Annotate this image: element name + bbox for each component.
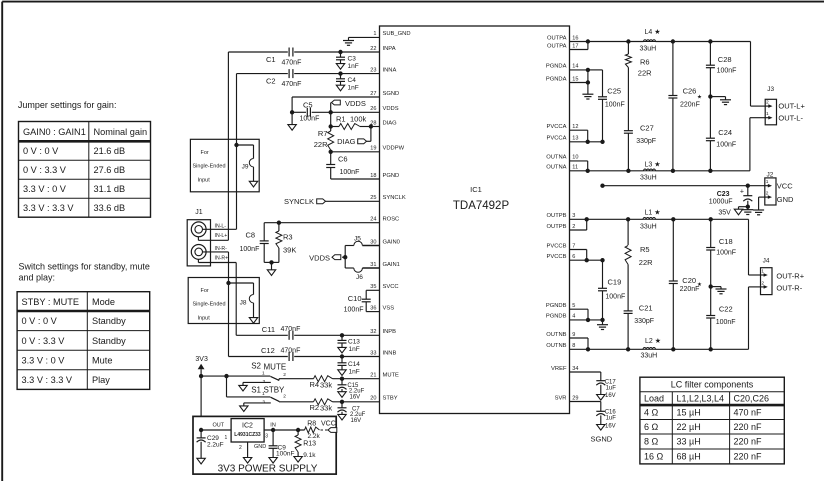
svg-text:S2: S2: [251, 362, 261, 371]
svg-text:C25: C25: [607, 87, 621, 96]
svg-text:0 V : 3.3 V: 0 V : 3.3 V: [22, 336, 66, 346]
svg-text:OUT-L-: OUT-L-: [778, 113, 803, 122]
svg-text:Input: Input: [198, 316, 211, 322]
svg-text:S1: S1: [251, 385, 261, 394]
svg-text:Standby: Standby: [92, 316, 126, 326]
svg-text:C2: C2: [266, 77, 276, 86]
svg-text:16V: 16V: [605, 393, 616, 399]
svg-text:31: 31: [370, 262, 376, 268]
svg-text:13: 13: [572, 136, 578, 142]
svg-text:J4: J4: [763, 258, 770, 265]
svg-text:VDDS: VDDS: [383, 106, 399, 112]
svg-text:1: 1: [225, 435, 228, 441]
svg-text:C18: C18: [719, 237, 733, 246]
svg-text:PGNDA: PGNDA: [546, 64, 567, 70]
svg-text:39K: 39K: [283, 245, 296, 254]
svg-text:VDDS: VDDS: [309, 254, 330, 263]
svg-text:33: 33: [370, 350, 376, 356]
svg-text:4 Ω: 4 Ω: [644, 408, 659, 418]
svg-text:R3: R3: [283, 232, 293, 241]
svg-text:1000uF: 1000uF: [709, 199, 733, 206]
svg-text:22R: 22R: [314, 140, 328, 149]
svg-text:0 V : 0 V: 0 V : 0 V: [22, 316, 58, 326]
svg-text:Nominal gain: Nominal gain: [94, 127, 148, 137]
svg-text:220nF: 220nF: [680, 286, 700, 293]
svg-text:GAIN0: GAIN0: [383, 239, 400, 245]
svg-text:3V3: 3V3: [195, 356, 208, 363]
svg-text:IN: IN: [270, 422, 276, 428]
svg-text:Jumper settings for gain:: Jumper settings for gain:: [18, 100, 117, 110]
svg-text:SVCC: SVCC: [383, 284, 399, 290]
svg-text:2.2uF: 2.2uF: [349, 389, 365, 395]
svg-text:and play:: and play:: [19, 273, 56, 283]
svg-text:470nF: 470nF: [282, 60, 302, 67]
svg-text:C12: C12: [261, 346, 275, 355]
svg-text:C10: C10: [348, 294, 362, 303]
svg-text:1nF: 1nF: [349, 346, 360, 353]
svg-text:31.1 dB: 31.1 dB: [94, 184, 126, 194]
svg-text:19: 19: [370, 146, 376, 152]
svg-text:22R: 22R: [638, 69, 652, 78]
svg-text:100nF: 100nF: [716, 319, 736, 326]
svg-text:IN-L+: IN-L+: [215, 233, 228, 239]
svg-text:J1: J1: [195, 209, 203, 216]
svg-text:SUB_GND: SUB_GND: [383, 31, 411, 37]
svg-text:29: 29: [572, 395, 578, 401]
svg-text:25: 25: [370, 195, 376, 201]
svg-text:220 nF: 220 nF: [734, 437, 763, 447]
svg-text:22: 22: [370, 46, 376, 52]
svg-text:OUTPB: OUTPB: [547, 224, 567, 230]
svg-text:GAIN1: GAIN1: [383, 262, 400, 268]
svg-text:35: 35: [370, 284, 376, 290]
svg-text:PGNDB: PGNDB: [546, 314, 567, 320]
svg-text:3.3 V : 0 V: 3.3 V : 0 V: [23, 184, 67, 194]
svg-text:C24: C24: [718, 128, 732, 137]
svg-text:470nF: 470nF: [281, 348, 301, 355]
svg-text:1nF: 1nF: [348, 63, 359, 70]
svg-text:J6: J6: [356, 274, 363, 281]
svg-text:Standby: Standby: [92, 336, 126, 346]
svg-text:C19: C19: [608, 278, 622, 287]
svg-text:34: 34: [572, 366, 578, 372]
svg-text:C1: C1: [266, 55, 276, 64]
svg-text:3.3 V : 3.3 V: 3.3 V : 3.3 V: [23, 203, 74, 213]
svg-text:C26: C26: [683, 87, 697, 96]
svg-text:32: 32: [370, 329, 376, 335]
svg-text:R6: R6: [640, 58, 650, 67]
svg-text:VCC: VCC: [777, 181, 793, 190]
svg-text:INPB: INPB: [383, 329, 397, 335]
svg-text:23: 23: [370, 67, 376, 73]
svg-text:24: 24: [370, 217, 376, 223]
svg-text:PVCCB: PVCCB: [547, 254, 567, 260]
svg-text:68 µH: 68 µH: [677, 452, 701, 462]
svg-text:R7: R7: [318, 129, 328, 138]
svg-text:PVCCA: PVCCA: [547, 124, 567, 130]
svg-text:9.1k: 9.1k: [303, 452, 316, 459]
svg-text:330pF: 330pF: [636, 138, 656, 145]
svg-text:9: 9: [572, 332, 575, 338]
svg-text:100nF: 100nF: [605, 293, 625, 300]
svg-text:33.6 dB: 33.6 dB: [94, 203, 126, 213]
svg-text:3.3 V : 0 V: 3.3 V : 0 V: [22, 355, 66, 365]
svg-text:16V: 16V: [351, 418, 362, 424]
svg-text:16V: 16V: [350, 395, 361, 401]
svg-text:IN-R+: IN-R+: [215, 256, 229, 262]
svg-text:C23: C23: [717, 191, 730, 198]
svg-text:11: 11: [572, 165, 578, 171]
svg-text:STBY: STBY: [383, 396, 398, 402]
svg-text:L1 ★: L1 ★: [645, 208, 661, 216]
svg-text:DIAG: DIAG: [383, 120, 398, 126]
svg-text:33uH: 33uH: [640, 46, 657, 53]
svg-text:ROSC: ROSC: [383, 217, 400, 223]
svg-text:16: 16: [572, 35, 578, 41]
svg-text:100nF: 100nF: [240, 246, 260, 253]
svg-text:6: 6: [572, 254, 575, 260]
svg-text:33k: 33k: [320, 381, 332, 390]
svg-text:2: 2: [283, 372, 286, 378]
svg-text:Mute: Mute: [92, 355, 112, 365]
svg-text:15 µH: 15 µH: [677, 408, 701, 418]
svg-text:220nF: 220nF: [680, 102, 700, 109]
svg-text:1: 1: [373, 31, 376, 37]
svg-text:30: 30: [370, 239, 376, 245]
svg-text:R13: R13: [303, 440, 316, 447]
svg-text:3: 3: [265, 434, 268, 440]
svg-text:VSS: VSS: [383, 305, 395, 311]
svg-text:VDDS: VDDS: [345, 99, 366, 108]
svg-text:J5: J5: [354, 236, 361, 243]
svg-text:SVR: SVR: [555, 395, 567, 401]
svg-text:8 Ω: 8 Ω: [644, 437, 659, 447]
svg-text:SYNCLK: SYNCLK: [284, 197, 314, 206]
svg-text:2.2uF: 2.2uF: [207, 442, 224, 449]
svg-text:R2: R2: [310, 403, 320, 412]
svg-text:R4: R4: [310, 380, 320, 389]
svg-text:1uF: 1uF: [606, 415, 617, 421]
svg-text:OUT-R+: OUT-R+: [776, 272, 804, 281]
svg-text:36: 36: [370, 305, 376, 311]
svg-text:33uH: 33uH: [641, 352, 658, 359]
svg-text:1: 1: [262, 370, 265, 376]
svg-text:VCC: VCC: [321, 420, 336, 427]
svg-text:VREF: VREF: [551, 366, 567, 372]
svg-text:PGNDB: PGNDB: [546, 303, 567, 309]
svg-text:Single-Ended: Single-Ended: [193, 302, 226, 308]
svg-text:Mode: Mode: [92, 297, 115, 307]
svg-text:100nF: 100nF: [344, 307, 364, 314]
svg-text:C20,C26: C20,C26: [734, 394, 770, 404]
svg-text:C5: C5: [303, 101, 313, 110]
svg-text:For: For: [201, 288, 209, 294]
svg-text:14: 14: [572, 64, 578, 70]
svg-text:C13: C13: [348, 339, 360, 346]
svg-text:5: 5: [572, 303, 575, 309]
svg-text:2: 2: [283, 393, 286, 399]
svg-text:OUTPB: OUTPB: [547, 213, 567, 219]
svg-text:470nF: 470nF: [281, 326, 301, 333]
svg-text:33 µH: 33 µH: [677, 437, 701, 447]
svg-text:1: 1: [262, 391, 265, 397]
svg-text:C27: C27: [640, 123, 654, 132]
svg-text:OUTNB: OUTNB: [546, 343, 566, 349]
svg-text:4: 4: [572, 314, 575, 320]
svg-text:0 V : 0 V: 0 V : 0 V: [23, 146, 59, 156]
svg-text:SGND: SGND: [591, 435, 613, 444]
svg-text:J2: J2: [767, 171, 774, 178]
svg-text:33k: 33k: [320, 404, 332, 413]
svg-text:16 Ω: 16 Ω: [644, 452, 664, 462]
svg-text:Load: Load: [644, 394, 664, 404]
svg-text:PVCCA: PVCCA: [547, 136, 567, 142]
svg-text:PGND: PGND: [383, 173, 400, 179]
svg-text:IC1: IC1: [470, 185, 482, 194]
svg-text:★: ★: [697, 94, 702, 101]
svg-text:1uF: 1uF: [606, 385, 617, 391]
svg-text:STBY: STBY: [264, 385, 286, 394]
svg-text:GAIN0 : GAIN1: GAIN0 : GAIN1: [23, 127, 86, 137]
svg-text:16V: 16V: [605, 424, 616, 430]
svg-text:TDA7492P: TDA7492P: [453, 200, 510, 212]
svg-text:MUTE: MUTE: [264, 363, 287, 372]
svg-text:IC2: IC2: [242, 422, 253, 429]
svg-text:22R: 22R: [639, 258, 653, 267]
svg-text:C6: C6: [338, 155, 348, 164]
svg-text:IN-L-: IN-L-: [215, 223, 227, 229]
svg-text:Play: Play: [92, 375, 110, 385]
svg-text:470 nF: 470 nF: [734, 408, 763, 418]
svg-text:OUT: OUT: [213, 422, 225, 428]
svg-text:100nF: 100nF: [716, 142, 736, 149]
svg-text:100nF: 100nF: [276, 451, 294, 458]
svg-text:100nF: 100nF: [717, 67, 737, 74]
svg-text:Input: Input: [198, 178, 211, 184]
svg-text:1nF: 1nF: [348, 85, 359, 92]
svg-text:3: 3: [572, 213, 575, 219]
svg-text:OUT-R-: OUT-R-: [776, 284, 802, 293]
svg-text:R1: R1: [336, 114, 346, 123]
svg-text:L2 ★: L2 ★: [645, 337, 661, 345]
svg-text:L3 ★: L3 ★: [645, 160, 661, 168]
svg-text:INNA: INNA: [383, 67, 397, 73]
svg-text:LC filter components: LC filter components: [671, 380, 754, 390]
svg-text:SGND: SGND: [383, 91, 400, 97]
svg-text:100nF: 100nF: [340, 169, 360, 176]
svg-text:GND: GND: [254, 444, 266, 450]
svg-text:Single-Ended: Single-Ended: [193, 164, 226, 170]
svg-text:L4931CZ33: L4931CZ33: [234, 432, 261, 438]
svg-text:L4 ★: L4 ★: [645, 28, 661, 36]
svg-text:C11: C11: [262, 325, 275, 334]
svg-text:470nF: 470nF: [282, 81, 302, 88]
svg-text:12: 12: [572, 124, 578, 130]
svg-text:INNB: INNB: [383, 350, 397, 356]
svg-text:C28: C28: [718, 55, 732, 64]
svg-text:100nF: 100nF: [605, 101, 625, 108]
svg-text:35V: 35V: [718, 210, 731, 217]
svg-text:C22: C22: [719, 304, 733, 313]
svg-text:OUTNA: OUTNA: [546, 165, 566, 171]
svg-text:21.6 dB: 21.6 dB: [94, 146, 126, 156]
svg-text:2: 2: [572, 224, 575, 230]
svg-text:MUTE: MUTE: [383, 373, 400, 379]
svg-text:1nF: 1nF: [349, 369, 360, 376]
svg-text:10: 10: [572, 155, 578, 161]
svg-text:IN-R-: IN-R-: [215, 246, 228, 252]
svg-text:33uH: 33uH: [640, 174, 657, 181]
svg-text:100nF: 100nF: [716, 250, 736, 257]
svg-text:26: 26: [370, 106, 376, 112]
svg-text:22 µH: 22 µH: [677, 422, 701, 432]
svg-text:OUT-L+: OUT-L+: [778, 102, 805, 111]
svg-text:C3: C3: [348, 56, 357, 63]
svg-text:J3: J3: [767, 86, 774, 93]
svg-text:6 Ω: 6 Ω: [644, 422, 659, 432]
svg-text:20: 20: [370, 396, 376, 402]
svg-text:100k: 100k: [350, 114, 367, 123]
svg-text:3V3 POWER SUPPLY: 3V3 POWER SUPPLY: [218, 464, 318, 475]
svg-text:0 V : 3.3 V: 0 V : 3.3 V: [23, 165, 67, 175]
svg-text:330pF: 330pF: [634, 318, 654, 325]
svg-text:220 nF: 220 nF: [734, 452, 763, 462]
svg-text:Switch settings for standby, m: Switch settings for standby, mute: [19, 262, 150, 272]
svg-text:STBY : MUTE: STBY : MUTE: [22, 297, 80, 307]
svg-text:2.2k: 2.2k: [308, 433, 321, 440]
svg-text:L1,L2,L3,L4: L1,L2,L3,L4: [677, 394, 725, 404]
svg-text:R5: R5: [640, 245, 650, 254]
svg-text:27.6 dB: 27.6 dB: [94, 165, 126, 175]
svg-text:27: 27: [370, 91, 376, 97]
svg-text:OUTPA: OUTPA: [547, 35, 567, 41]
svg-text:SYNCLK: SYNCLK: [383, 195, 406, 201]
svg-text:PVCCB: PVCCB: [547, 243, 567, 249]
svg-text:OUTNB: OUTNB: [546, 332, 566, 338]
svg-text:OUTPA: OUTPA: [547, 43, 567, 49]
svg-text:J8: J8: [240, 300, 247, 307]
svg-text:C4: C4: [348, 77, 357, 84]
svg-text:C8: C8: [246, 231, 256, 240]
svg-text:INPA: INPA: [383, 46, 396, 52]
svg-text:33uH: 33uH: [640, 224, 657, 231]
svg-text:J9: J9: [242, 164, 249, 171]
svg-text:For: For: [201, 150, 209, 156]
svg-text:PGNDA: PGNDA: [546, 76, 567, 82]
svg-text:100nF: 100nF: [300, 116, 320, 123]
svg-text:OUTNA: OUTNA: [546, 155, 566, 161]
svg-text:C21: C21: [639, 304, 653, 313]
svg-text:C14: C14: [348, 361, 360, 368]
svg-text:17: 17: [572, 43, 578, 49]
svg-text:GND: GND: [777, 195, 794, 204]
svg-text:18: 18: [370, 173, 376, 179]
svg-text:DIAG: DIAG: [337, 137, 356, 146]
svg-text:7: 7: [572, 243, 575, 249]
svg-text:C20: C20: [682, 276, 696, 285]
svg-text:VDDPW: VDDPW: [383, 146, 405, 152]
svg-text:+: +: [740, 189, 744, 196]
svg-text:21: 21: [370, 373, 376, 379]
svg-text:220 nF: 220 nF: [734, 422, 763, 432]
svg-text:15: 15: [572, 76, 578, 82]
svg-text:8: 8: [572, 343, 575, 349]
svg-text:3.3 V : 3.3 V: 3.3 V : 3.3 V: [22, 375, 73, 385]
svg-text:R8: R8: [307, 420, 316, 427]
svg-text:2: 2: [239, 445, 242, 451]
